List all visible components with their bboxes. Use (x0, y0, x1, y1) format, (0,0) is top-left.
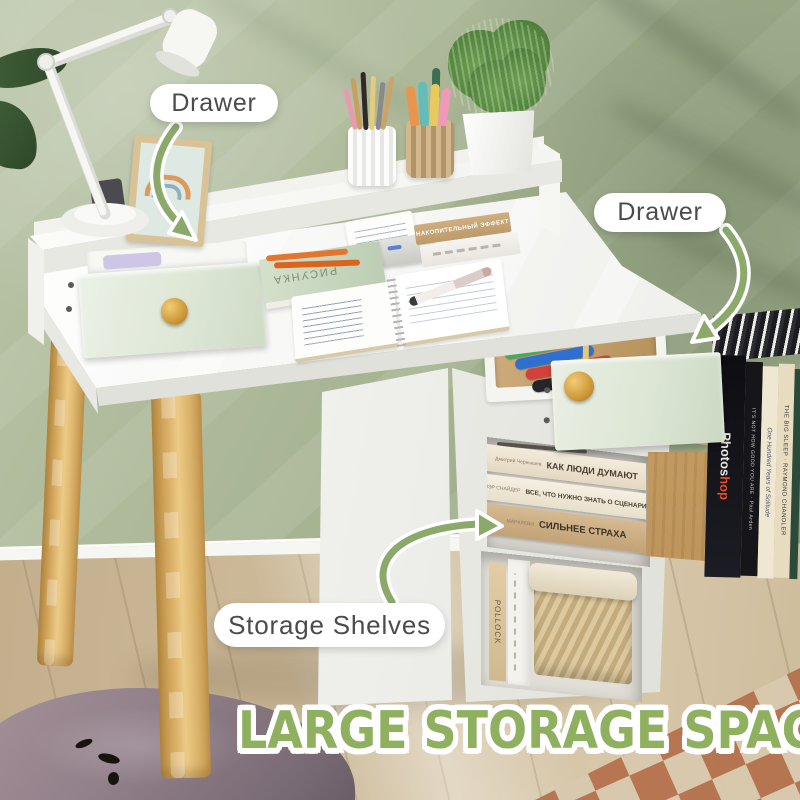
book-author: Дмитрий Чернышев (495, 455, 541, 467)
potted-plant-texture (446, 18, 554, 120)
storage-shelf-top-cubby: Дмитрий Чернышев КАК ЛЮДИ ДУМАЮТ КЛЭР СН… (487, 437, 650, 567)
plant-pot (458, 110, 541, 176)
screw (68, 282, 74, 288)
drawer-top-open (77, 240, 268, 359)
book-author: МАРКЛЕВИ (507, 518, 534, 527)
screw (66, 306, 72, 312)
screw (544, 417, 550, 423)
callout-label: Drawer (171, 89, 256, 118)
book-author: КЛЭР СНАЙДЕР (487, 483, 520, 494)
storage-shelf-bottom-cubby: POLLOCK (481, 551, 642, 702)
callout-storage-shelves: Storage Shelves (214, 603, 445, 647)
pencil-cup-white (348, 126, 396, 186)
callout-label: Drawer (617, 198, 702, 227)
book-title: КАК ЛЮДИ ДУМАЮТ (546, 460, 637, 481)
notebook-page (291, 281, 398, 363)
desk-lamp (18, 0, 230, 252)
callout-drawer-top: Drawer (150, 84, 278, 122)
callout-drawer-right: Drawer (594, 193, 726, 232)
book-title: СИЛЬНЕЕ СТРАХА (539, 519, 626, 541)
callout-label: Storage Shelves (228, 610, 431, 641)
desk-leg-front (151, 391, 211, 778)
book-title: ВСЕ, ЧТО НУЖНО ЗНАТЬ О СЦЕНАРИИ (525, 488, 650, 510)
marker-cup-wood (406, 120, 454, 178)
book-spine (508, 559, 530, 686)
blanket-fold (30, 706, 250, 786)
product-photo: Дмитрий Чернышев КАК ЛЮДИ ДУМАЮТ КЛЭР СН… (0, 0, 800, 800)
headline-text: LARGE STORAGE SPACE (238, 700, 800, 760)
book-spine: POLLOCK (489, 562, 506, 682)
